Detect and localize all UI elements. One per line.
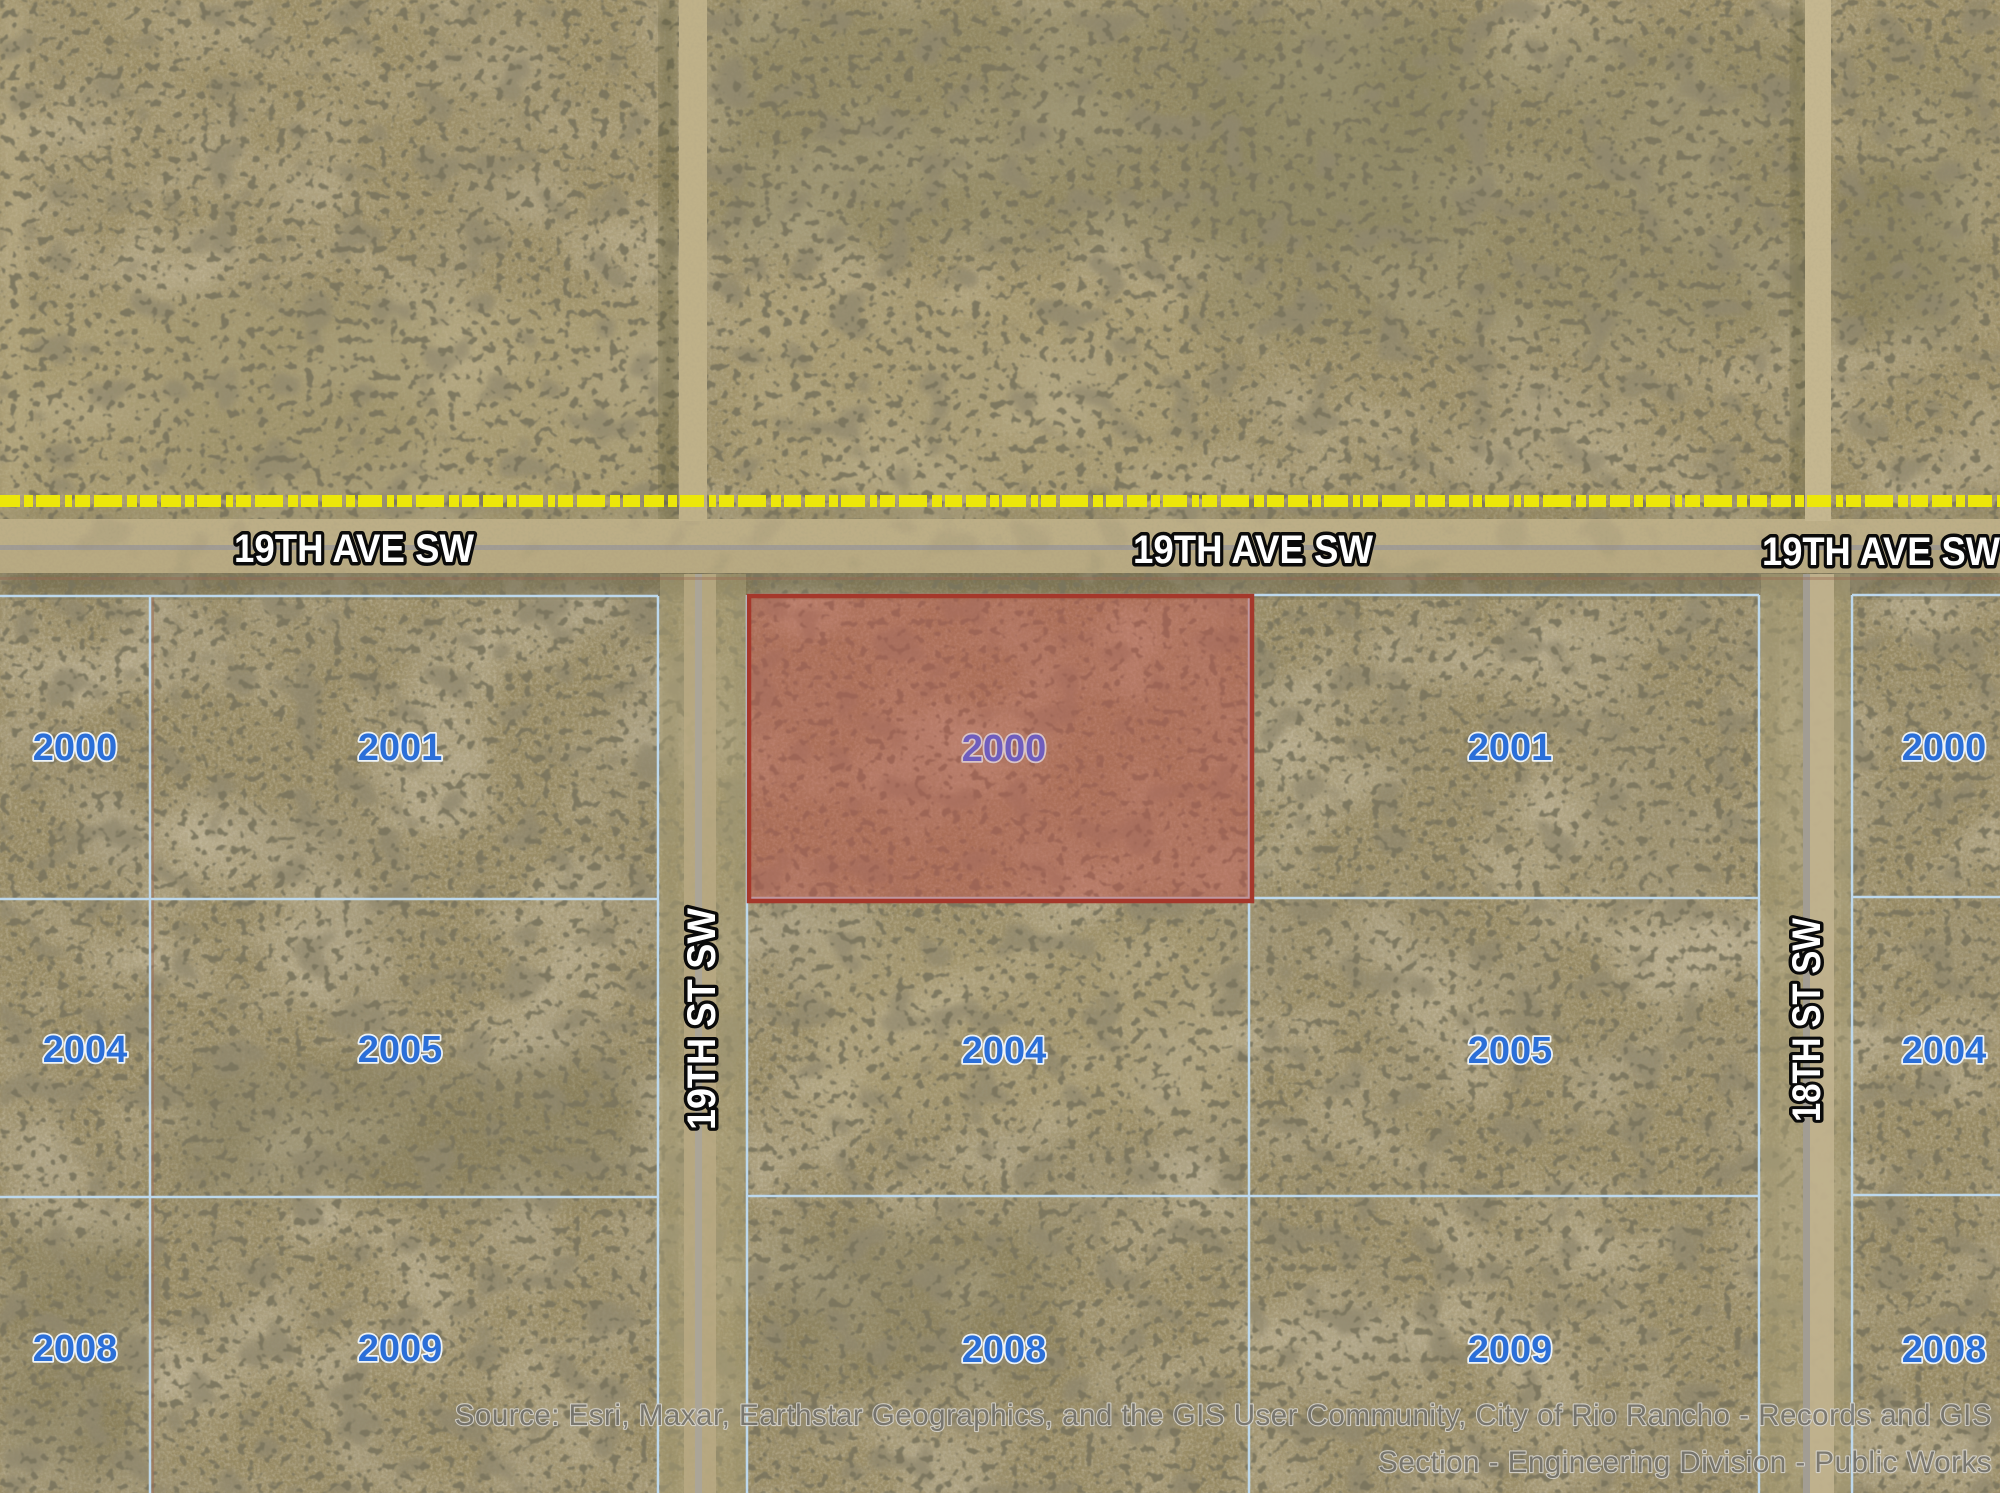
svg-text:2008: 2008 (1902, 1329, 1987, 1371)
svg-text:2001: 2001 (358, 727, 443, 769)
svg-text:2005: 2005 (1468, 1030, 1553, 1072)
svg-text:2004: 2004 (43, 1029, 128, 1071)
svg-text:Section - Engineering Division: Section - Engineering Division - Public … (1378, 1446, 1992, 1479)
svg-text:19TH AVE SW: 19TH AVE SW (234, 527, 474, 571)
svg-text:2005: 2005 (358, 1029, 443, 1071)
svg-text:2009: 2009 (1468, 1329, 1553, 1371)
svg-text:Source: Esri, Maxar, Earthstar: Source: Esri, Maxar, Earthstar Geographi… (455, 1399, 1992, 1432)
svg-text:18TH ST SW: 18TH ST SW (1785, 918, 1829, 1122)
svg-text:2009: 2009 (358, 1328, 443, 1370)
svg-text:2000: 2000 (33, 727, 118, 769)
svg-text:19TH AVE SW: 19TH AVE SW (1762, 530, 2000, 574)
svg-text:2000: 2000 (962, 728, 1047, 770)
svg-text:19TH ST SW: 19TH ST SW (680, 908, 724, 1130)
svg-text:2008: 2008 (962, 1329, 1047, 1371)
svg-text:19TH AVE SW: 19TH AVE SW (1133, 528, 1373, 572)
svg-text:2001: 2001 (1468, 727, 1553, 769)
svg-text:2004: 2004 (1902, 1030, 1987, 1072)
svg-text:2000: 2000 (1902, 727, 1987, 769)
svg-text:2004: 2004 (962, 1030, 1047, 1072)
svg-text:2008: 2008 (33, 1328, 118, 1370)
